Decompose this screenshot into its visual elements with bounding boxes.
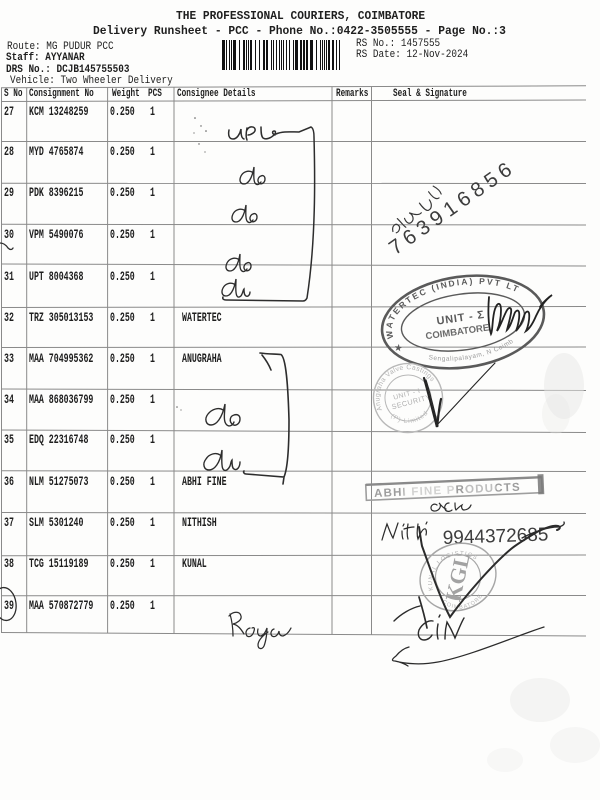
svg-text:763916856: 763916856 <box>385 155 521 260</box>
svg-text:COIMBATORE: COIMBATORE <box>425 322 490 342</box>
svg-text:9944372685: 9944372685 <box>442 524 548 549</box>
